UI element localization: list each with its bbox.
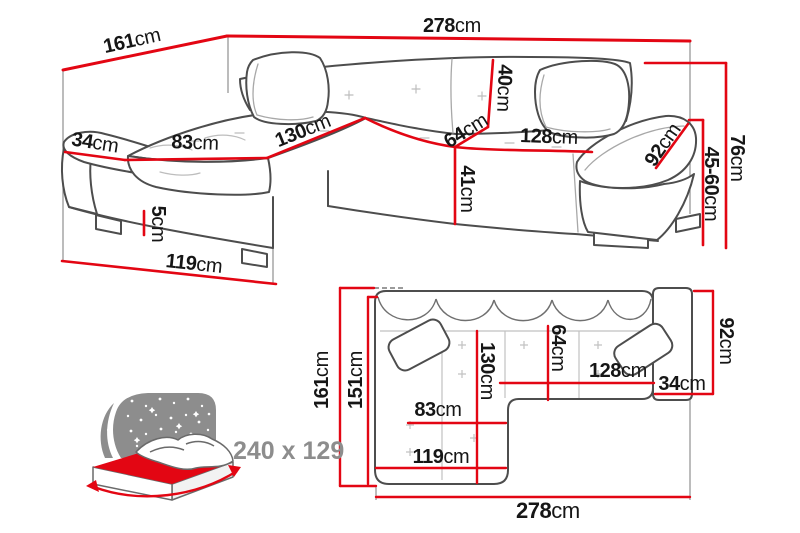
sleep-function-icon: 240 x 129 bbox=[86, 393, 344, 500]
top-view: 161cm 151cm 130cm 64cm 128cm 34cm 92cm 8… bbox=[311, 288, 737, 523]
dim-3d-40cm: 40cm bbox=[492, 64, 516, 112]
perspective-view: 161cm 278cm 34cm 83cm 130cm 64cm 40cm 12… bbox=[62, 15, 748, 284]
dim-top-130cm: 130cm bbox=[476, 342, 498, 400]
dim-top-119cm: 119cm bbox=[413, 446, 470, 468]
dim-3d-45-60cm: 45-60cm bbox=[700, 147, 722, 222]
dim-top-34cm: 34cm bbox=[658, 373, 705, 395]
dim-3d-76cm: 76cm bbox=[726, 134, 748, 181]
dim-top-151cm: 151cm bbox=[345, 351, 367, 409]
dim-top-83cm: 83cm bbox=[414, 399, 461, 421]
dim-3d-161cm: 161cm bbox=[101, 24, 162, 58]
dim-top-278cm: 278cm bbox=[516, 498, 580, 523]
dim-3d-5cm: 5cm bbox=[147, 206, 169, 243]
dim-3d-278cm: 278cm bbox=[423, 15, 481, 37]
dim-top-128cm: 128cm bbox=[589, 360, 647, 382]
dim-3d-83cm: 83cm bbox=[171, 131, 219, 155]
sleep-size-label: 240 x 129 bbox=[233, 437, 344, 465]
dim-top-92cm: 92cm bbox=[715, 317, 737, 364]
dim-3d-41cm: 41cm bbox=[456, 165, 478, 212]
sofa-dimensions-diagram: 161cm 278cm 34cm 83cm 130cm 64cm 40cm 12… bbox=[0, 0, 800, 533]
dim-3d-128cm: 128cm bbox=[520, 125, 579, 149]
dim-top-161cm: 161cm bbox=[311, 351, 333, 409]
dim-top-64cm: 64cm bbox=[547, 324, 569, 371]
